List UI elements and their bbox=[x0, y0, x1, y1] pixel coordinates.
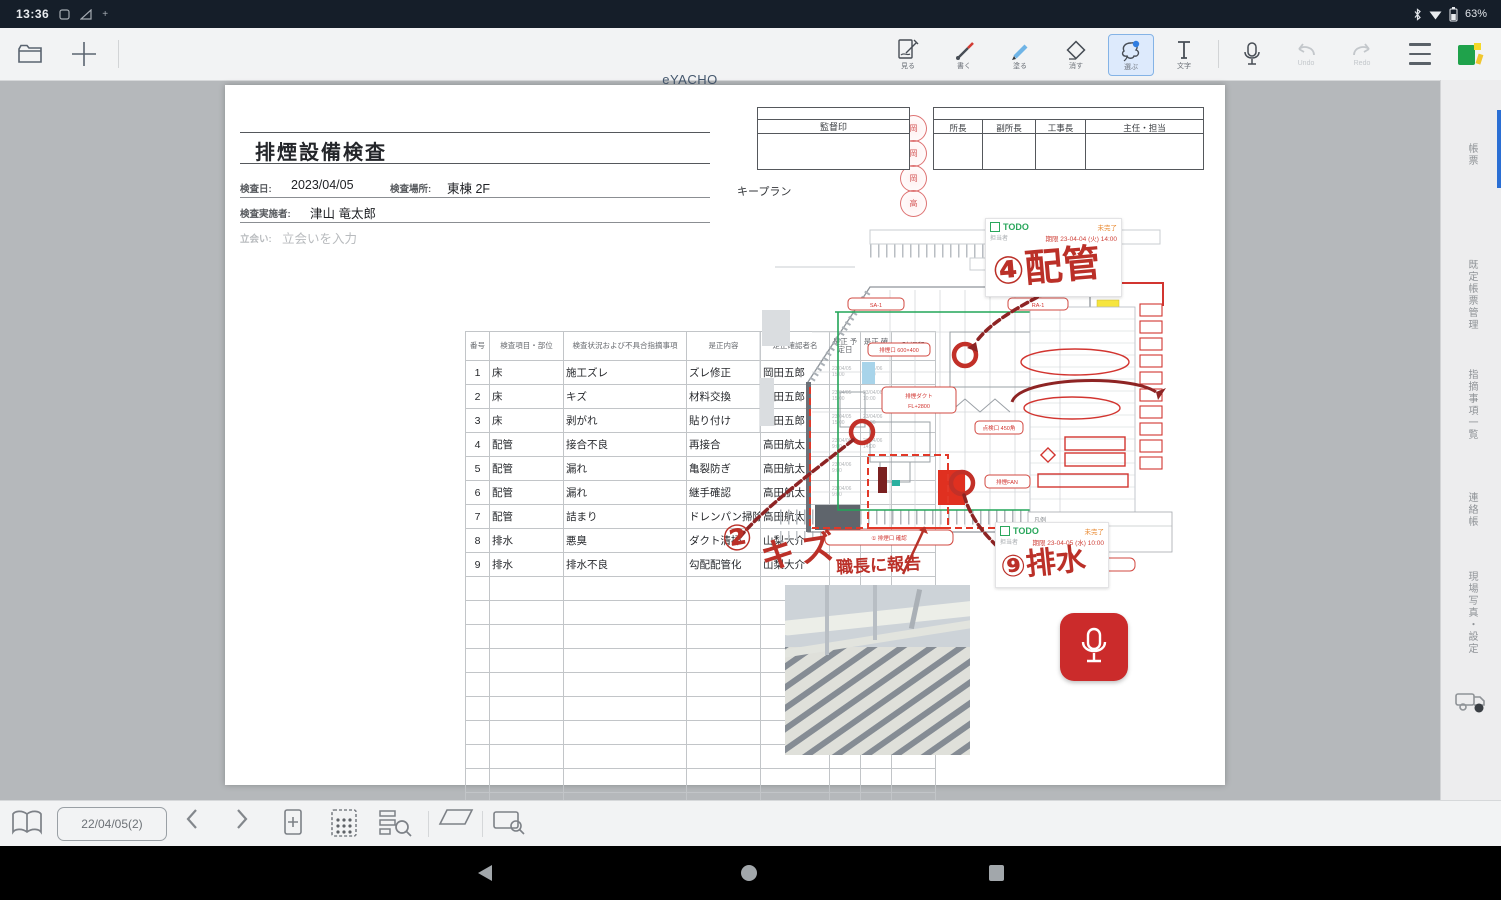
todo-checkbox[interactable] bbox=[1000, 526, 1010, 536]
svg-text:① 排煙口 確認: ① 排煙口 確認 bbox=[871, 534, 907, 542]
handwriting-pipe: ④配管 bbox=[990, 231, 1103, 295]
flat-view-button[interactable] bbox=[438, 808, 474, 826]
toolbar-divider bbox=[1218, 40, 1219, 68]
table-cell bbox=[687, 721, 761, 745]
table-cell: 床 bbox=[490, 361, 564, 385]
table-cell: 排水 bbox=[490, 553, 564, 577]
sidebar-tab-4[interactable]: 連絡帳 bbox=[1441, 470, 1501, 550]
table-cell bbox=[490, 769, 564, 793]
sidebar-tab-3[interactable]: 指摘事項一覧 bbox=[1441, 350, 1501, 460]
sidebar-tab-2[interactable]: 既定帳票管理 bbox=[1441, 240, 1501, 350]
table-cell bbox=[490, 601, 564, 625]
svg-text:排煙口 600×400: 排煙口 600×400 bbox=[879, 346, 919, 354]
todo-label: TODO bbox=[1003, 222, 1029, 232]
table-cell bbox=[687, 769, 761, 793]
rule-line bbox=[240, 197, 710, 198]
sidebar-tab-1[interactable]: 帳票 bbox=[1441, 120, 1501, 190]
table-cell: 9 bbox=[466, 553, 490, 577]
tool-text-button[interactable]: 文字 bbox=[1162, 34, 1206, 74]
notebook-color-button[interactable] bbox=[1448, 34, 1492, 74]
table-cell bbox=[490, 697, 564, 721]
field-place-label: 検査場所: bbox=[390, 181, 431, 195]
app-toolbar: eYACHO 見る 書く 塗る 消す 選ぶ 文字 bbox=[0, 28, 1501, 81]
table-cell bbox=[466, 769, 490, 793]
table-cell: 6 bbox=[466, 481, 490, 505]
undo-icon bbox=[1293, 41, 1319, 59]
table-cell bbox=[564, 601, 687, 625]
pen-icon bbox=[952, 38, 976, 62]
mic-icon bbox=[1241, 41, 1263, 67]
table-cell: 8 bbox=[466, 529, 490, 553]
table-cell bbox=[490, 625, 564, 649]
table-cell: 配管 bbox=[490, 457, 564, 481]
table-cell bbox=[466, 697, 490, 721]
table-cell bbox=[830, 769, 861, 793]
approval-columns: 所長副所長工事長主任・担当 bbox=[934, 120, 1203, 169]
folder-icon bbox=[17, 43, 43, 65]
table-cell bbox=[687, 649, 761, 673]
back-button[interactable] bbox=[478, 865, 492, 881]
table-cell bbox=[687, 697, 761, 721]
thumbnail-grid-icon bbox=[330, 808, 358, 838]
plus-icon bbox=[70, 40, 98, 68]
approval-stamp-box: 所長副所長工事長主任・担当 bbox=[933, 107, 1204, 170]
table-header-cell: 検査項目・部位 bbox=[490, 332, 564, 361]
lasso-icon bbox=[1119, 39, 1143, 63]
table-cell bbox=[466, 721, 490, 745]
field-inspector-value[interactable]: 津山 竜太郎 bbox=[310, 203, 376, 222]
handwriting-drain: ⑨排水 bbox=[998, 534, 1088, 587]
svg-text:点検口 450角: 点検口 450角 bbox=[983, 424, 1016, 432]
table-cell bbox=[490, 745, 564, 769]
table-cell bbox=[490, 721, 564, 745]
previous-page-button[interactable] bbox=[185, 808, 199, 830]
table-cell: 接合不良 bbox=[564, 433, 687, 457]
record-voice-button[interactable] bbox=[1060, 613, 1128, 681]
table-cell: 剥がれ bbox=[564, 409, 687, 433]
tool-select-button[interactable]: 選ぶ bbox=[1108, 34, 1154, 76]
clock: 13:36 bbox=[16, 7, 49, 21]
table-cell bbox=[687, 625, 761, 649]
text-icon bbox=[1172, 38, 1196, 62]
plus-notification-icon: + bbox=[102, 9, 108, 20]
table-row[interactable] bbox=[466, 769, 936, 793]
notebook-icon bbox=[1455, 40, 1485, 68]
table-cell bbox=[564, 649, 687, 673]
table-cell: 4 bbox=[466, 433, 490, 457]
handwriting-report: 職長に報告 bbox=[835, 549, 921, 578]
table-cell bbox=[687, 601, 761, 625]
table-cell: 床 bbox=[490, 385, 564, 409]
rule-line bbox=[240, 163, 710, 164]
menu-button[interactable] bbox=[1398, 34, 1442, 74]
new-page-button[interactable] bbox=[62, 34, 106, 74]
notification-icon bbox=[59, 9, 70, 20]
pipes-photo[interactable] bbox=[785, 585, 970, 755]
home-button[interactable] bbox=[741, 865, 757, 881]
table-cell bbox=[861, 769, 892, 793]
supervisor-box-title: 監督印 bbox=[758, 119, 909, 134]
approval-column-1: 所長 bbox=[934, 120, 982, 169]
view-page-icon bbox=[896, 38, 920, 62]
open-book-icon bbox=[10, 808, 44, 838]
table-cell bbox=[564, 769, 687, 793]
rule-line bbox=[240, 222, 710, 223]
eraser-icon bbox=[1064, 38, 1088, 62]
svg-text:排煙FAN: 排煙FAN bbox=[996, 478, 1018, 486]
table-cell: 3 bbox=[466, 409, 490, 433]
zoom-rectangle-icon bbox=[492, 808, 526, 836]
table-cell bbox=[564, 625, 687, 649]
approval-column-4: 主任・担当 bbox=[1085, 120, 1203, 169]
tool-pen-button[interactable]: 書く bbox=[942, 34, 986, 74]
table-cell bbox=[466, 601, 490, 625]
page-date-chip[interactable]: 22/04/05(2) bbox=[57, 807, 167, 841]
tool-marker-button[interactable]: 塗る bbox=[998, 34, 1042, 74]
add-page-icon bbox=[282, 808, 304, 836]
search-pages-button[interactable] bbox=[378, 808, 412, 838]
table-cell bbox=[564, 577, 687, 601]
wifi-icon bbox=[1429, 9, 1442, 20]
table-cell bbox=[564, 697, 687, 721]
note-status: 未完了 bbox=[1098, 222, 1118, 232]
search-pages-icon bbox=[378, 808, 412, 838]
field-place-value[interactable]: 東棟 2F bbox=[447, 178, 490, 197]
table-cell bbox=[466, 577, 490, 601]
table-cell bbox=[466, 625, 490, 649]
approval-column-2: 副所長 bbox=[982, 120, 1035, 169]
todo-label: TODO bbox=[1013, 526, 1039, 536]
tool-view-button[interactable]: 見る bbox=[886, 34, 930, 74]
table-cell bbox=[490, 649, 564, 673]
table-cell: 施工ズレ bbox=[564, 361, 687, 385]
svg-text:排煙ダクト: 排煙ダクト bbox=[905, 392, 933, 400]
table-header-cell: 番号 bbox=[466, 332, 490, 361]
table-cell bbox=[687, 745, 761, 769]
table-cell bbox=[490, 577, 564, 601]
field-witness-placeholder[interactable]: 立会いを入力 bbox=[282, 228, 357, 247]
toolbar-divider bbox=[118, 40, 119, 68]
bottombar-divider bbox=[428, 811, 429, 837]
eyacho-app: 13:36 + 63% eYACHO bbox=[0, 0, 1501, 900]
table-cell bbox=[892, 769, 936, 793]
table-cell: 配管 bbox=[490, 433, 564, 457]
battery-icon bbox=[1449, 7, 1458, 22]
table-cell: 悪臭 bbox=[564, 529, 687, 553]
marker-icon bbox=[1008, 38, 1032, 62]
table-cell: 7 bbox=[466, 505, 490, 529]
page-thumbnails-button[interactable] bbox=[330, 808, 358, 838]
table-cell: 配管 bbox=[490, 505, 564, 529]
keyplan-label: キープラン bbox=[737, 183, 791, 199]
supervisor-stamp-box: 監督印 bbox=[757, 107, 910, 170]
table-cell bbox=[564, 673, 687, 697]
approval-column-3: 工事長 bbox=[1035, 120, 1085, 169]
undo-button[interactable]: Undo bbox=[1284, 34, 1328, 74]
notebook-pages-button[interactable] bbox=[10, 808, 44, 838]
bluetooth-icon bbox=[1413, 8, 1422, 21]
table-cell: 1 bbox=[466, 361, 490, 385]
document-title: 排煙設備検査 bbox=[255, 136, 387, 165]
add-page-button[interactable] bbox=[282, 808, 304, 836]
redo-button[interactable]: Redo bbox=[1340, 34, 1384, 74]
table-cell bbox=[466, 649, 490, 673]
table-cell bbox=[490, 673, 564, 697]
table-cell: 排水 bbox=[490, 529, 564, 553]
parallelogram-icon bbox=[438, 808, 474, 826]
redo-icon bbox=[1349, 41, 1375, 59]
page-navigation-bar: 22/04/05(2) bbox=[0, 800, 1501, 847]
field-inspector-label: 検査実施者: bbox=[240, 206, 291, 220]
note-status: 未完了 bbox=[1085, 526, 1105, 536]
todo-checkbox[interactable] bbox=[990, 222, 1000, 232]
mic-icon bbox=[1079, 627, 1109, 667]
edit-notification-icon bbox=[80, 9, 92, 20]
chevron-left-icon bbox=[185, 808, 199, 830]
table-cell: 2 bbox=[466, 385, 490, 409]
svg-text:SA-1: SA-1 bbox=[870, 303, 882, 309]
table-header-cell: 検査状況および不具合指摘事項 bbox=[564, 332, 687, 361]
recents-button[interactable] bbox=[989, 865, 1004, 881]
table-cell bbox=[687, 673, 761, 697]
field-date-label: 検査日: bbox=[240, 181, 272, 195]
zoom-region-button[interactable] bbox=[492, 808, 526, 836]
chevron-right-icon bbox=[235, 808, 249, 830]
rule-line bbox=[240, 132, 710, 133]
table-cell: 排水不良 bbox=[564, 553, 687, 577]
android-nav-bar bbox=[0, 846, 1501, 900]
table-cell: 5 bbox=[466, 457, 490, 481]
table-cell bbox=[466, 673, 490, 697]
battery-percent: 63% bbox=[1465, 8, 1487, 20]
field-date-value[interactable]: 2023/04/05 bbox=[291, 178, 354, 192]
voice-memo-button[interactable] bbox=[1230, 34, 1274, 74]
svg-text:FL+2800: FL+2800 bbox=[908, 404, 930, 410]
table-cell: 配管 bbox=[490, 481, 564, 505]
table-cell bbox=[761, 769, 830, 793]
table-cell bbox=[466, 745, 490, 769]
table-cell bbox=[564, 721, 687, 745]
tool-eraser-button[interactable]: 消す bbox=[1054, 34, 1098, 74]
table-cell: キズ bbox=[564, 385, 687, 409]
table-cell: 漏れ bbox=[564, 481, 687, 505]
sidebar-tab-5[interactable]: 現場写真・設定 bbox=[1441, 550, 1501, 675]
svg-text:RA-1: RA-1 bbox=[1032, 303, 1045, 309]
table-cell: 床 bbox=[490, 409, 564, 433]
field-witness-label: 立会い: bbox=[240, 231, 272, 245]
android-status-bar: 13:36 + 63% bbox=[0, 0, 1501, 28]
table-cell bbox=[564, 745, 687, 769]
table-cell: 詰まり bbox=[564, 505, 687, 529]
delivery-sync-icon[interactable] bbox=[1455, 688, 1487, 714]
table-cell: 漏れ bbox=[564, 457, 687, 481]
bottombar-divider bbox=[482, 811, 483, 837]
right-tab-sidebar: 帳票既定帳票管理指摘事項一覧連絡帳現場写真・設定 bbox=[1440, 80, 1501, 800]
next-page-button[interactable] bbox=[235, 808, 249, 830]
open-folder-button[interactable] bbox=[8, 34, 52, 74]
